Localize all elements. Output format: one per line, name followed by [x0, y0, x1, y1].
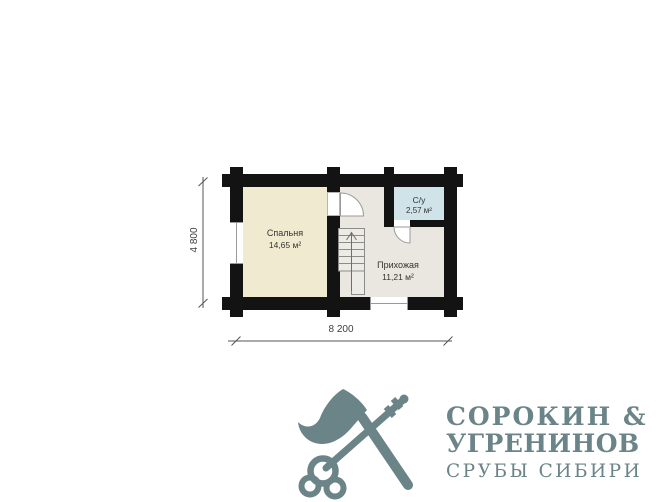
bottom-wall: [222, 297, 463, 310]
logo-subtitle: СРУБЫ СИБИРИ: [446, 461, 650, 482]
left-window: [230, 222, 243, 264]
hallway-area: 11,21 м²: [346, 272, 450, 284]
bedroom-door-opening: [327, 192, 340, 216]
logo-title-line2: УГРЕНИНОВ: [446, 429, 650, 458]
height-dimension-label: 4 800: [189, 210, 203, 270]
entrance-opening: [370, 297, 408, 310]
bedroom-label: Спальня 14,65 м²: [243, 228, 327, 251]
logo-title-line1: СОРОКИН &: [446, 402, 650, 431]
hallway-name: Прихожая: [346, 260, 450, 272]
top-wall: [222, 174, 463, 187]
bathroom-area: 2,57 м²: [392, 206, 446, 217]
width-dimension-tick-left: [232, 337, 241, 346]
width-dimension-tick-right: [444, 337, 453, 346]
height-dimension-tick-bottom: [199, 299, 208, 308]
hallway-label: Прихожая 11,21 м²: [346, 260, 450, 283]
right-wall: [444, 167, 457, 317]
bedroom-name: Спальня: [243, 228, 327, 240]
bedroom-area: 14,65 м²: [243, 240, 327, 252]
entrance-opening-line: [371, 303, 407, 304]
interior-wall: [327, 167, 340, 317]
width-dimension-line: [228, 337, 453, 346]
bathroom-label: С/у 2,57 м²: [392, 195, 446, 216]
bathroom-door-opening: [394, 220, 410, 227]
height-dimension-tick-top: [199, 178, 208, 187]
axe-icon: [298, 389, 408, 485]
page: Спальня 14,65 м² Прихожая 11,21 м² С/у 2…: [0, 0, 667, 502]
width-dimension-label: 8 200: [301, 324, 381, 335]
bathroom-name: С/у: [392, 195, 446, 206]
axe-and-key-icon: [296, 386, 424, 502]
left-window-glass-line: [236, 223, 237, 263]
